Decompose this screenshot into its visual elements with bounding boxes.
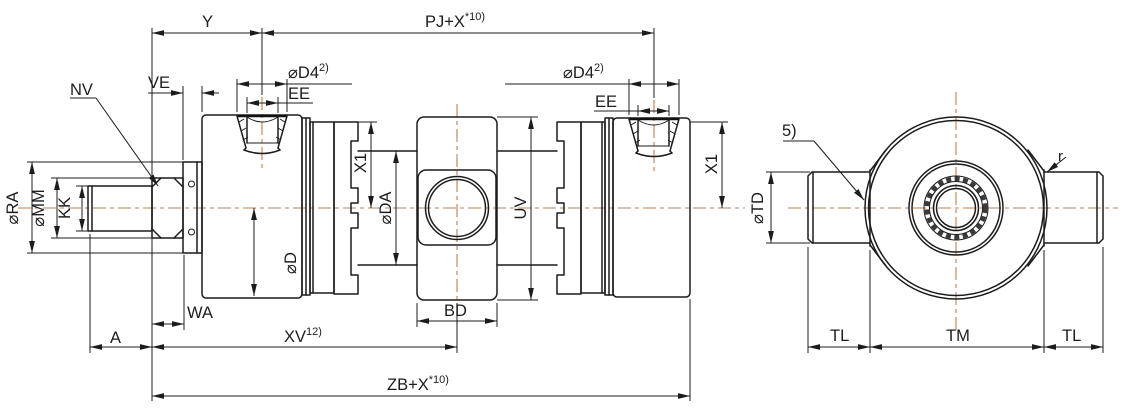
note-label-5: 5) xyxy=(782,122,797,140)
dim-label-td: ⌀TD xyxy=(749,192,767,224)
dim-label-xv-base: XV xyxy=(284,328,306,346)
dim-label-r: r xyxy=(1058,148,1063,165)
dim-label-pj-sup: *10) xyxy=(465,11,485,23)
dim-label-uv: UV xyxy=(512,197,530,220)
head-clamp-right xyxy=(557,118,613,295)
dim-label-tm: TM xyxy=(946,327,970,345)
dim-label-d4-left-sup: 2) xyxy=(319,62,329,74)
dim-label-zb: ZB+X*10) xyxy=(387,374,449,394)
dim-label-ee-left: EE xyxy=(288,85,310,103)
dim-label-tl-right: TL xyxy=(1062,327,1081,345)
dim-label-mm: ⌀MM xyxy=(30,189,48,226)
dim-label-d4-left-base: ⌀D4 xyxy=(288,64,319,82)
dim-label-d4-left: ⌀D42) xyxy=(288,62,329,82)
dim-label-ve: VE xyxy=(148,74,170,92)
dim-label-bd: BD xyxy=(444,302,467,320)
dim-label-x1-right: X1 xyxy=(703,154,721,174)
dim-label-wa: WA xyxy=(187,304,213,322)
drawing-page: Y PJ+X*10) VE NV ⌀D42) EE ⌀D42) EE 5) r … xyxy=(0,0,1147,408)
dimension-labels: Y PJ+X*10) VE NV ⌀D42) EE ⌀D42) EE 5) r … xyxy=(4,11,1081,394)
dimension-lines xyxy=(32,33,1103,396)
dim-label-d: ⌀D xyxy=(282,252,300,274)
dim-label-x1-left: X1 xyxy=(352,153,370,173)
dim-label-zb-sup: *10) xyxy=(429,374,449,386)
dim-label-d4-right: ⌀D42) xyxy=(563,62,604,82)
dim-label-pj: PJ+X*10) xyxy=(425,11,485,31)
dim-label-ee-right: EE xyxy=(595,93,617,111)
leader-lines xyxy=(70,98,1066,200)
dim-label-pj-base: PJ+X xyxy=(425,13,465,31)
dim-label-zb-base: ZB+X xyxy=(387,376,429,394)
dim-label-ra: ⌀RA xyxy=(4,192,22,225)
dim-label-xv: XV12) xyxy=(284,326,322,346)
dim-label-d4-right-sup: 2) xyxy=(594,62,604,74)
dim-label-y: Y xyxy=(202,13,213,31)
dim-label-a: A xyxy=(110,329,121,347)
dim-label-kk: KK xyxy=(56,197,74,219)
cylinder-drawing: Y PJ+X*10) VE NV ⌀D42) EE ⌀D42) EE 5) r … xyxy=(0,0,1147,408)
dim-label-nv: NV xyxy=(70,81,93,99)
dim-label-tl-left: TL xyxy=(830,327,849,345)
dim-label-da: ⌀DA xyxy=(377,192,395,225)
dim-label-d4-right-base: ⌀D4 xyxy=(563,64,594,82)
head-clamp-left xyxy=(302,118,358,295)
dim-label-xv-sup: 12) xyxy=(306,326,322,338)
